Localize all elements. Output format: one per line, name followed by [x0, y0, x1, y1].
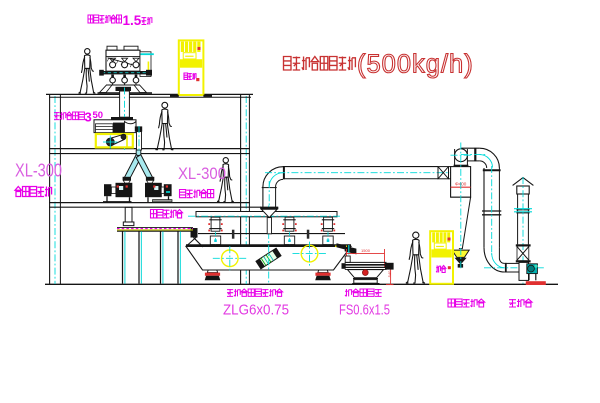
svg-text:ZLG6x0.75: ZLG6x0.75	[223, 303, 289, 319]
svg-text:XL-300: XL-300	[178, 165, 226, 183]
svg-text:(500kg/h): (500kg/h)	[357, 51, 474, 79]
svg-text:50: 50	[93, 110, 104, 121]
svg-text:1500: 1500	[361, 248, 371, 253]
svg-text:FS0.6x1.5: FS0.6x1.5	[339, 303, 390, 319]
svg-text:3: 3	[85, 110, 92, 125]
svg-text:1.5: 1.5	[123, 13, 142, 28]
svg-text:XL-300: XL-300	[15, 161, 62, 181]
svg-text:540: 540	[387, 270, 392, 277]
